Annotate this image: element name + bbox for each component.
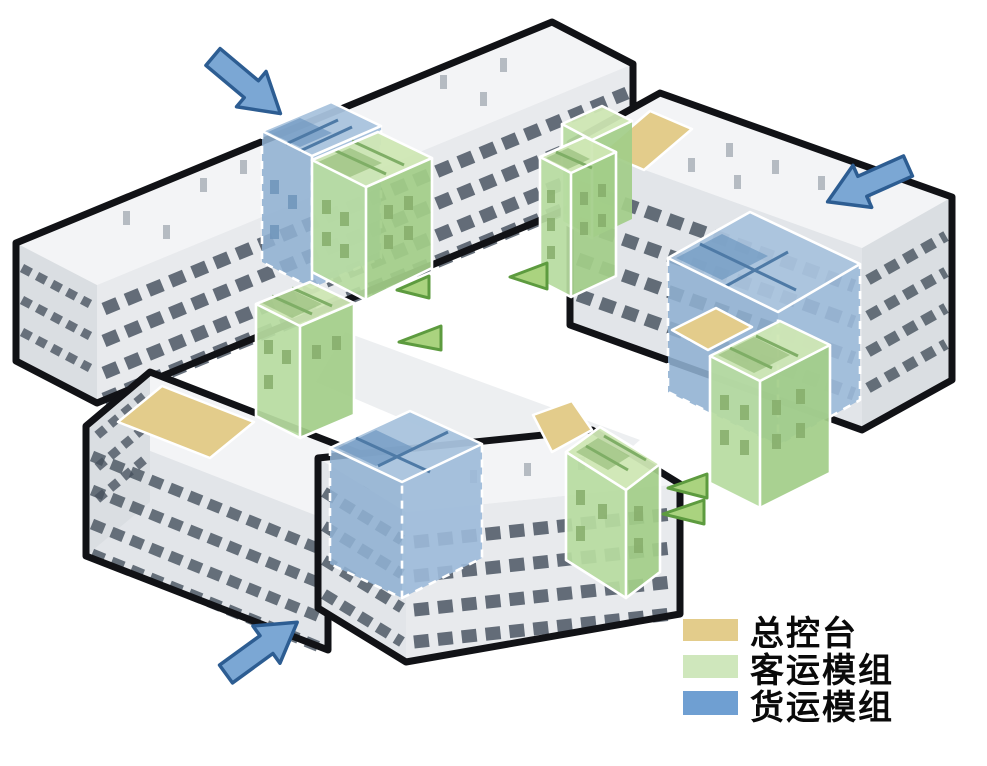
legend-label-passenger: 客运模组 [750, 651, 894, 690]
passenger-tower-east-lower [710, 321, 830, 508]
passenger-tower-east-front [540, 137, 616, 297]
courtyard-marker-2 [399, 326, 441, 350]
legend-swatch-console [683, 619, 738, 641]
legend-row-console: 总控台 [683, 615, 858, 653]
passenger-module-box-nw [312, 132, 432, 300]
legend-label-freight: 货运模组 [750, 689, 894, 727]
axonometric-diagram: 总控台 客运模组 货运模组 [0, 0, 987, 766]
legend-row-passenger: 客运模组 [683, 651, 894, 690]
entry-arrow-top-left [198, 39, 295, 131]
courtyard-marker-3 [510, 263, 547, 289]
legend: 总控台 客运模组 货运模组 [683, 615, 894, 727]
legend-swatch-freight [683, 691, 738, 715]
diagram-canvas: 总控台 客运模组 货运模组 [0, 0, 987, 766]
legend-row-freight: 货运模组 [683, 689, 894, 727]
legend-swatch-passenger [683, 655, 738, 678]
legend-label-console: 总控台 [750, 615, 858, 653]
passenger-tower-sw [256, 282, 354, 438]
freight-module-box-south [330, 411, 482, 598]
